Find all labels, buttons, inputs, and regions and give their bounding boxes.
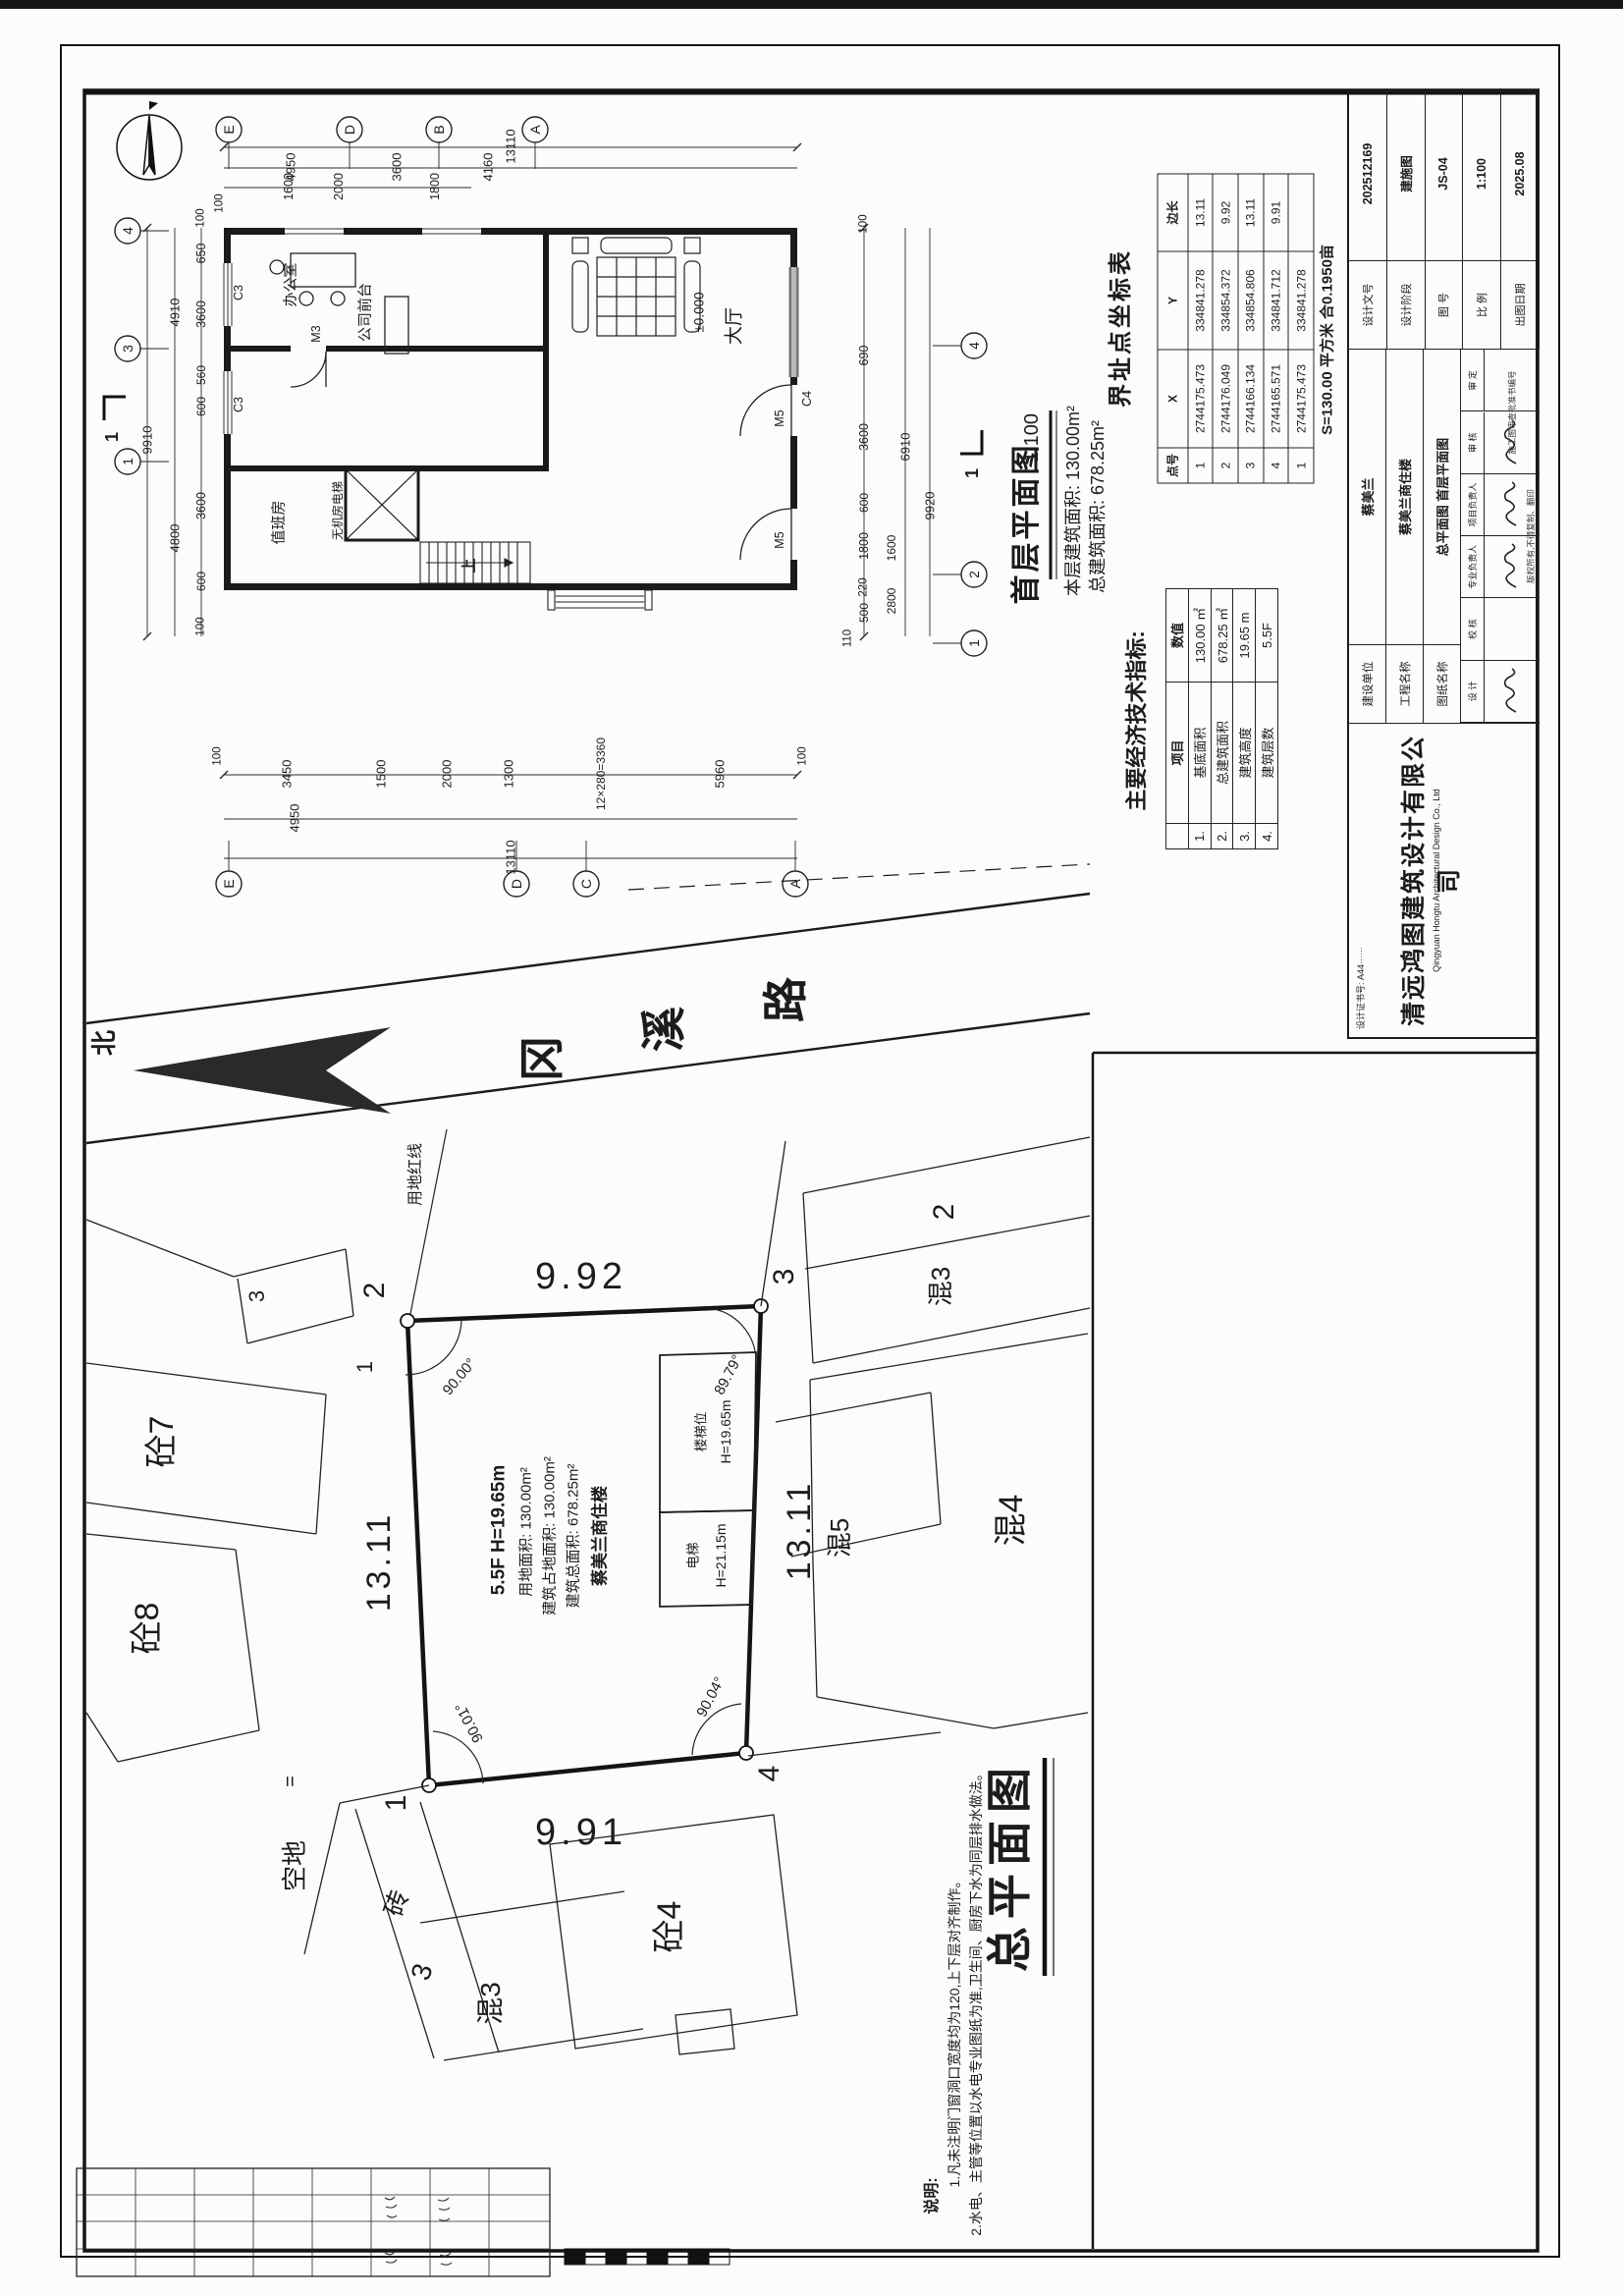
dim-label: 3450: [281, 760, 294, 789]
site-title: 总平面图: [987, 1760, 1032, 1972]
neighbor-label: 1: [354, 1361, 376, 1373]
dim-label: 13110: [505, 129, 517, 163]
dim-label: 690: [858, 346, 871, 366]
indicators-table: 项目数值1.基底面积130.00 ㎡2.总建筑面积678.25 ㎡3.建筑高度1…: [1165, 589, 1278, 849]
role-label: 审 定: [1461, 350, 1485, 410]
neighbor-label: 混4: [995, 1495, 1028, 1547]
table-cell: 建筑层数: [1255, 682, 1277, 823]
handwriting-marks: [385, 2197, 452, 2265]
room-label: 公司前台: [358, 283, 373, 342]
plan-title: 首层平面图: [1012, 443, 1042, 605]
party-value: 蔡美兰商住楼: [1386, 350, 1423, 644]
dim-label: 100: [212, 746, 224, 765]
title-block: 设计证书号: A44······ 清远鸿图建筑设计有限公司 Qingyuan H…: [1347, 90, 1538, 1039]
table-header-cell: 数值: [1165, 588, 1188, 682]
table-cell: [1288, 174, 1314, 251]
table-header-cell: Y: [1158, 251, 1188, 350]
dim-label: 100: [797, 746, 809, 765]
red-line-label: 用地红线: [408, 1143, 424, 1206]
corner-number: 2: [360, 1283, 390, 1299]
building-info: 5.5F H=19.65m: [490, 1465, 509, 1596]
section-mark-label: 1: [963, 468, 981, 478]
area-summary: S=130.00 平方米 合0.1950亩: [1321, 245, 1335, 435]
title-block-field-row: 出图日期2025.08: [1501, 88, 1540, 350]
dim-label: 2000: [333, 173, 346, 200]
axis-label: 1: [967, 639, 981, 647]
plot-inner-boxes: [660, 1352, 756, 1607]
axis-label: D: [510, 879, 523, 889]
dim-label: 2000: [441, 760, 454, 789]
table-cell: 1: [1187, 448, 1213, 483]
field-label: 设计文号: [1349, 260, 1386, 349]
role-label: 项目负责人: [1461, 474, 1485, 535]
countersign-grid: [77, 2168, 550, 2276]
dim-label: 9910: [141, 426, 154, 455]
room-label: 办公室: [284, 262, 298, 306]
party-label: 工程名称: [1386, 644, 1423, 723]
neighbor-label: 2: [930, 1204, 959, 1221]
copyright-note: 版权所有,不得复制、翻印: [1525, 359, 1537, 713]
building-name: 蔡美兰商住楼: [592, 1486, 609, 1586]
table-row: 12744175.473334841.278: [1288, 174, 1314, 483]
dim-label: 4950: [289, 804, 301, 833]
table-cell: 2.: [1211, 823, 1233, 848]
party-value: 蔡美兰: [1349, 350, 1385, 644]
table-row: 32744166.134334854.80613.11: [1238, 174, 1264, 483]
table-cell: 建筑高度: [1232, 682, 1255, 823]
notes-line: 1.凡未注明门窗洞口宽度均为120,上下层对齐制作。: [947, 1875, 961, 2188]
room-label: 无机房电梯: [332, 481, 344, 540]
party-label: 建设单位: [1349, 644, 1385, 723]
table-cell: 2744175.473: [1187, 350, 1213, 448]
room-label: 值班房: [272, 500, 287, 544]
building-info: 建筑总面积: 678.25m²: [567, 1464, 581, 1609]
field-value: 建施图: [1387, 87, 1425, 260]
dim-label: 110: [842, 629, 854, 647]
table-cell: 9.91: [1263, 174, 1288, 251]
dim-label: 13110: [505, 840, 517, 874]
axis-label: D: [343, 125, 356, 135]
dim-label: 3600: [858, 423, 871, 451]
company-name: 清远鸿图建筑设计有限公司: [1394, 724, 1465, 1037]
axis-label: A: [788, 879, 802, 888]
table-cell: 678.25 ㎡: [1211, 588, 1233, 682]
stair-up-label: 上: [462, 558, 477, 573]
axis-label: 4: [121, 227, 135, 235]
table-cell: 2: [1213, 448, 1238, 483]
entrance-steps: [548, 590, 652, 610]
title-block-party-row: 工程名称蔡美兰商住楼: [1386, 350, 1424, 723]
dim-label: 3600: [195, 492, 208, 519]
door-tag: M5: [774, 410, 786, 426]
dim-label: 6910: [899, 433, 912, 462]
table-cell: 4.: [1255, 823, 1277, 848]
axis-label: 4: [967, 342, 981, 350]
dim-label: 4800: [169, 524, 182, 553]
drawing-sheet: 点号XY边长12744175.473334841.27813.112274417…: [0, 0, 1623, 2296]
title-block-party-row: 图纸名称总平面图 首层平面图: [1424, 350, 1461, 723]
table-cell: 1.: [1188, 823, 1211, 848]
table-header-cell: [1165, 823, 1188, 848]
dim-label: 100: [195, 617, 207, 635]
table-header-cell: 点号: [1158, 448, 1188, 483]
table-cell: 2744166.134: [1238, 350, 1264, 448]
table-cell: 5.5F: [1255, 588, 1277, 682]
table-cell: 334854.372: [1213, 251, 1238, 350]
stair-box-label: 楼梯位: [694, 1412, 708, 1452]
dim-label: 600: [195, 572, 207, 591]
compass-icon: [117, 101, 182, 180]
title-block-party-row: 建设单位蔡美兰: [1349, 350, 1386, 723]
plan-scale: 1:100: [1022, 413, 1042, 463]
road-name-char: 冈: [519, 1036, 565, 1081]
building-info: 建筑占地面积: 130.00m²: [543, 1456, 558, 1615]
table-cell: 334841.278: [1187, 251, 1213, 350]
dim-label: 220: [858, 577, 870, 596]
dim-label: 1300: [503, 760, 515, 789]
title-block-field-row: 比 例1:100: [1463, 88, 1501, 350]
table-header-cell: X: [1158, 350, 1188, 448]
table-cell: 130.00 ㎡: [1188, 588, 1211, 682]
dim-label: 1600: [283, 173, 296, 200]
lobby-furniture: [572, 238, 700, 336]
dim-label: 1600: [886, 535, 897, 562]
side-dim: 9.92: [535, 1258, 627, 1295]
table-cell: 2744176.049: [1213, 350, 1238, 448]
field-value: 2025.08: [1501, 87, 1539, 260]
table-cell: 9.92: [1213, 174, 1238, 251]
elevator-box-height: H=21.15m: [714, 1524, 728, 1588]
indicators-table-title: 主要经济技术指标:: [1126, 630, 1148, 810]
table-cell: 19.65 m: [1232, 588, 1255, 682]
party-value: 总平面图 首层平面图: [1424, 350, 1460, 644]
review-stamp-note: 施工图审查批准书编号: [1506, 334, 1518, 491]
field-label: 比 例: [1463, 260, 1500, 349]
neighbor-label: 3: [246, 1290, 268, 1302]
dim-label: 100: [195, 208, 207, 227]
design-certificate-no: 设计证书号: A44······: [1354, 947, 1367, 1029]
axis-label: 1: [121, 458, 135, 465]
section-mark-label: 1: [103, 432, 121, 442]
level-label: ±0.000: [692, 292, 706, 332]
company-name-en: Qingyuan Hongtu Architectural Design Co.…: [1432, 724, 1441, 1037]
plan-area-this-floor: 本层建筑面积: 130.00m²: [1064, 406, 1082, 596]
role-label: 审 核: [1461, 412, 1485, 473]
dim-label: 5960: [714, 760, 727, 789]
site-plan-linework: [86, 864, 1090, 2060]
table-header-cell: 边长: [1158, 174, 1188, 251]
table-cell: 13.11: [1187, 174, 1213, 251]
axis-label: E: [222, 125, 236, 134]
dim-label: 1800: [858, 532, 871, 560]
table-row: 1.基底面积130.00 ㎡: [1188, 588, 1211, 848]
dim-label: 650: [195, 244, 208, 264]
corner-number: 4: [755, 1766, 784, 1782]
neighbor-label: 空地: [282, 1840, 307, 1891]
road-name-char: 溪: [641, 1007, 686, 1052]
neighbor-label: 混3: [928, 1267, 953, 1306]
role-label: 校 核: [1461, 598, 1485, 659]
neighbor-label: 混5: [827, 1518, 852, 1558]
neighbor-label: =: [281, 1776, 300, 1787]
side-dim: 9.91: [535, 1814, 627, 1851]
dim-label: 3600: [391, 153, 404, 182]
dim-label: 2800: [886, 588, 897, 615]
neighbor-label: 砼4: [653, 1901, 686, 1953]
road-name-char: 路: [763, 977, 808, 1022]
boundary-coordinate-table: 点号XY边长12744175.473334841.27813.112274417…: [1157, 174, 1314, 483]
dim-label: 560: [195, 365, 207, 385]
role-label: 专业负责人: [1461, 536, 1485, 597]
field-label: 图 号: [1426, 260, 1463, 349]
dim-label: 600: [195, 397, 207, 416]
axis-label: A: [528, 125, 542, 134]
table-cell: 4: [1263, 448, 1288, 483]
neighbor-label: 砼8: [131, 1603, 164, 1655]
side-dim: 13.11: [362, 1511, 396, 1613]
dim-label: 500: [858, 603, 870, 623]
dim-label: 1800: [429, 173, 442, 200]
table-row: 42744165.571334841.7129.91: [1263, 174, 1288, 483]
table-cell: 13.11: [1238, 174, 1264, 251]
role-label: 设 计: [1461, 661, 1485, 722]
door-tag: M5: [774, 531, 786, 548]
axis-label: B: [432, 125, 446, 134]
table-cell: 334841.712: [1263, 251, 1288, 350]
dim-label: 9920: [924, 492, 937, 520]
axis-label: E: [222, 879, 236, 888]
table-cell: 基底面积: [1188, 682, 1211, 823]
field-value: JS-04: [1426, 87, 1463, 260]
table-cell: 334854.806: [1238, 251, 1264, 350]
dim-label: 3600: [195, 301, 208, 328]
axis-label: 2: [967, 571, 981, 578]
elevator-box-label: 电梯: [686, 1543, 700, 1569]
north-label: 北: [91, 1030, 117, 1056]
room-label: 大厅: [726, 307, 744, 345]
scan-edge: [0, 0, 1623, 9]
neighbor-label: 混3: [477, 1982, 505, 2025]
dimension-lines: [143, 143, 930, 858]
axis-label: 3: [121, 345, 135, 353]
table-cell: 1: [1288, 448, 1314, 483]
floor-plan-walls: [104, 101, 1056, 897]
table-cell: 334841.278: [1288, 251, 1314, 350]
dim-label: 100: [858, 214, 870, 233]
corner-number: 1: [382, 1795, 411, 1812]
field-label: 设计阶段: [1387, 260, 1425, 349]
window-tag: C4: [801, 391, 814, 407]
window-tag: C3: [233, 397, 245, 412]
elevator-shaft: [346, 469, 418, 540]
dim-label: 100: [214, 193, 226, 212]
door-tag: M3: [310, 325, 323, 342]
table-row: 2.总建筑面积678.25 ㎡: [1211, 588, 1233, 848]
field-value: 202512169: [1349, 87, 1386, 260]
boundary-table-title: 界址点坐标表: [1109, 248, 1133, 408]
side-dim: 13.11: [783, 1480, 816, 1581]
plan-area-total: 总建筑面积: 678.25m²: [1089, 420, 1107, 593]
field-value: 1:100: [1463, 87, 1500, 260]
table-cell: 3: [1238, 448, 1264, 483]
party-label: 图纸名称: [1424, 644, 1460, 723]
table-cell: 总建筑面积: [1211, 682, 1233, 823]
table-row: 4.建筑层数5.5F: [1255, 588, 1277, 848]
title-block-field-row: 设计阶段建施图: [1387, 88, 1426, 350]
notes-header: 说明:: [925, 2177, 941, 2214]
table-cell: 2744175.473: [1288, 350, 1314, 448]
dim-label: 600: [858, 493, 870, 513]
notes-line: 2.水电、主管等位置以水电专业图纸为准,卫生间、厨房下水为同层排水做法。: [969, 1767, 983, 2236]
table-row: 22744176.049334854.3729.92: [1213, 174, 1238, 483]
table-row: 3.建筑高度19.65 m: [1232, 588, 1255, 848]
dim-label: 1500: [375, 760, 388, 789]
table-cell: 2744165.571: [1263, 350, 1288, 448]
table-cell: 3.: [1232, 823, 1255, 848]
title-block-company-cell: 设计证书号: A44······ 清远鸿图建筑设计有限公司 Qingyuan H…: [1349, 723, 1540, 1037]
stair-box-height: H=19.65m: [719, 1400, 732, 1464]
title-block-field-row: 图 号JS-04: [1426, 88, 1464, 350]
title-block-field-row: 设计文号202512169: [1349, 88, 1387, 350]
table-row: 12744175.473334841.27813.11: [1187, 174, 1213, 483]
axis-label: C: [579, 879, 593, 889]
corner-number: 3: [770, 1269, 799, 1285]
dim-label: 12×280=3360: [595, 738, 607, 810]
building-info: 用地面积: 130.00m²: [519, 1467, 534, 1597]
north-arrow-icon: [134, 1027, 391, 1114]
window-tag: C3: [233, 285, 245, 301]
dim-label: 4910: [169, 299, 182, 327]
neighbor-label: 砼7: [145, 1416, 179, 1468]
dim-label: 4160: [482, 153, 495, 182]
table-header-cell: 项目: [1165, 682, 1188, 823]
